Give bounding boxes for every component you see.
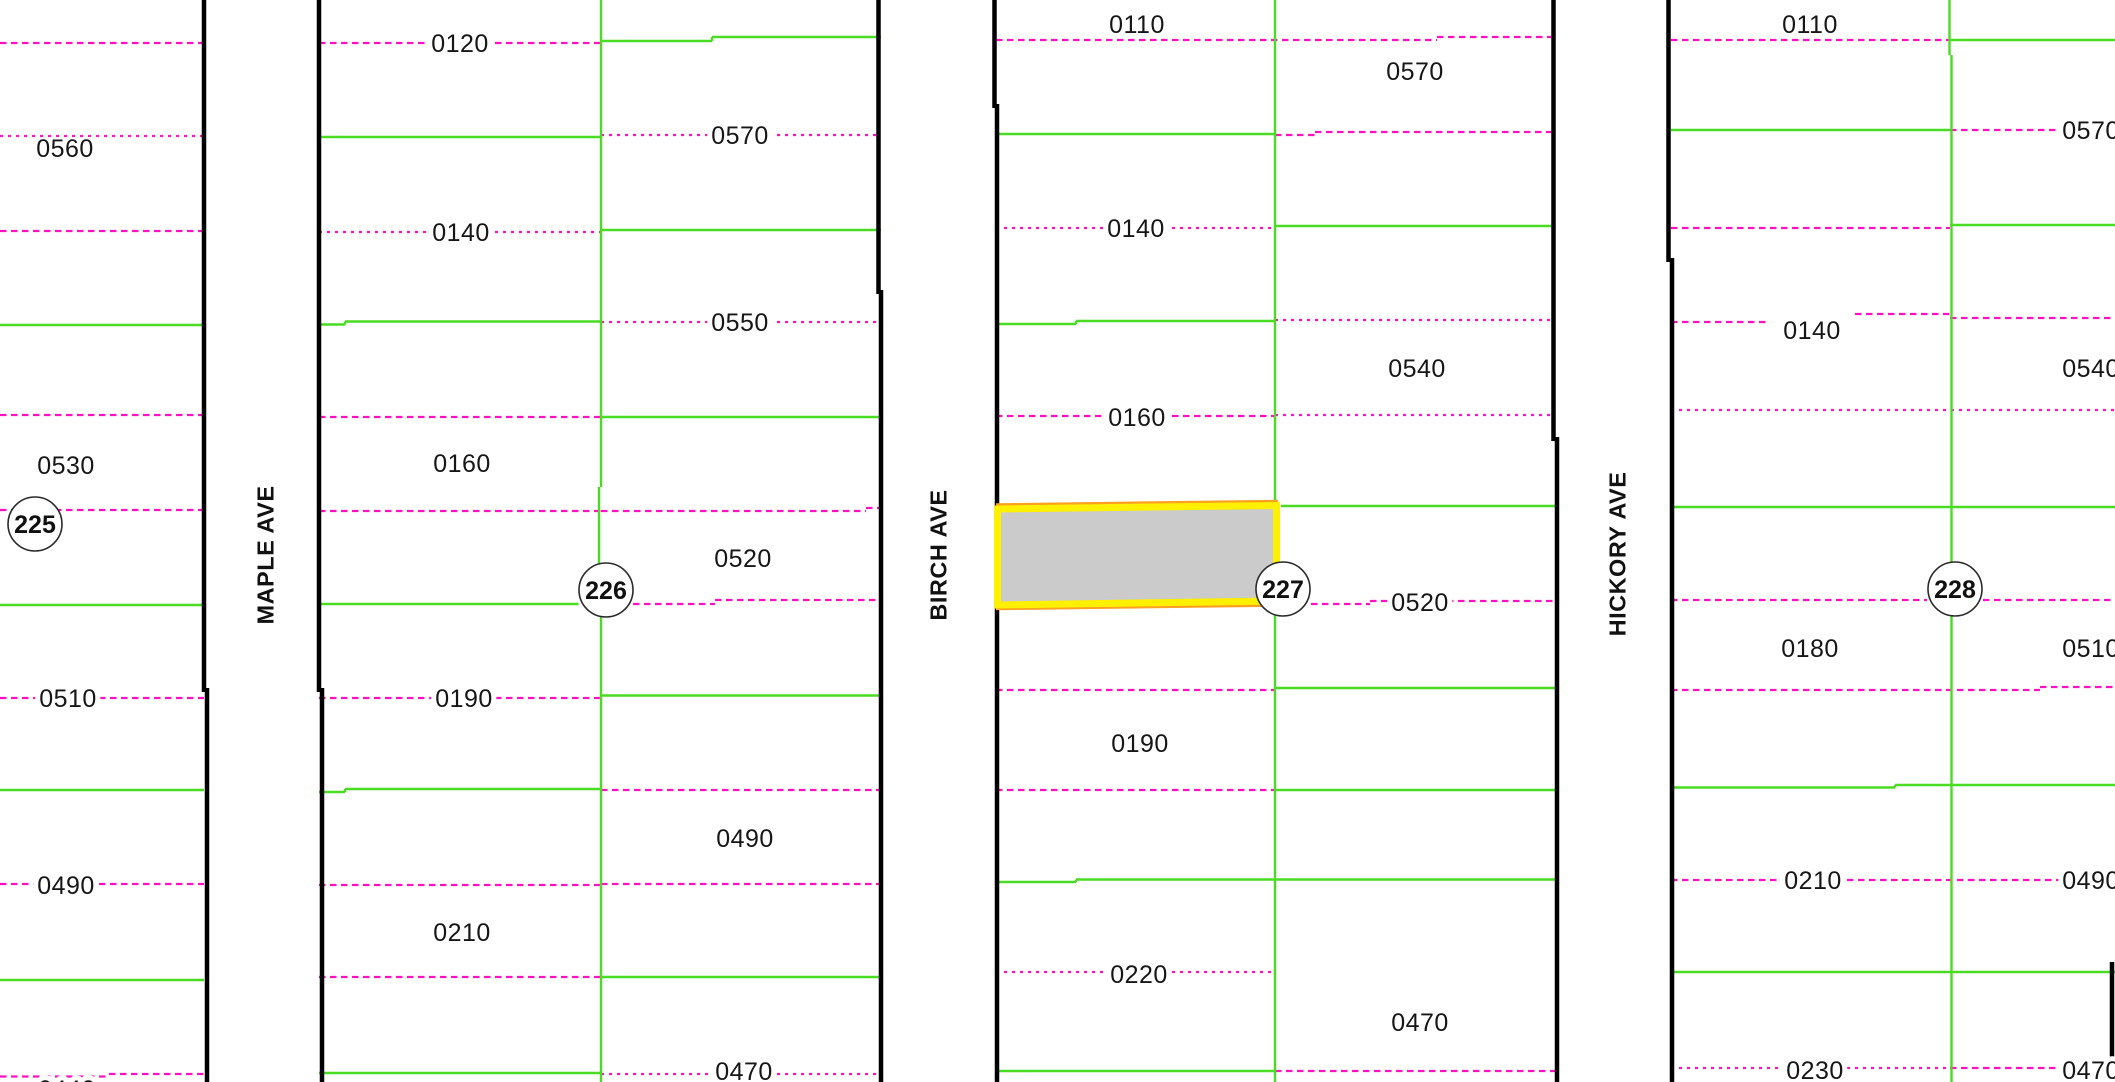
- svg-text:0560: 0560: [36, 135, 94, 163]
- svg-text:0470: 0470: [2062, 1057, 2115, 1082]
- svg-text:0510: 0510: [2062, 635, 2115, 663]
- svg-text:0470: 0470: [1391, 1009, 1449, 1037]
- svg-text:0550: 0550: [711, 309, 769, 337]
- svg-text:0540: 0540: [2062, 355, 2115, 383]
- svg-text:225: 225: [14, 511, 56, 539]
- svg-text:0520: 0520: [714, 545, 772, 573]
- svg-text:228: 228: [1934, 576, 1976, 604]
- svg-text:0110: 0110: [1782, 11, 1838, 39]
- svg-text:HICKORY AVE: HICKORY AVE: [1605, 472, 1631, 637]
- svg-text:BIRCH AVE: BIRCH AVE: [926, 489, 952, 620]
- svg-text:0190: 0190: [1111, 730, 1169, 758]
- svg-text:0140: 0140: [432, 219, 490, 247]
- svg-text:0180: 0180: [1781, 635, 1839, 663]
- svg-text:0140: 0140: [1107, 215, 1165, 243]
- svg-text:0220: 0220: [1110, 961, 1168, 989]
- svg-text:0510: 0510: [39, 685, 97, 713]
- svg-text:0520: 0520: [1391, 589, 1449, 617]
- svg-text:MAPLE AVE: MAPLE AVE: [253, 486, 279, 625]
- svg-text:0160: 0160: [433, 450, 491, 478]
- svg-text:0540: 0540: [1388, 355, 1446, 383]
- svg-text:0490: 0490: [2062, 867, 2115, 895]
- svg-text:0570: 0570: [2062, 117, 2115, 145]
- svg-text:226: 226: [585, 577, 627, 605]
- svg-text:227: 227: [1262, 576, 1304, 604]
- svg-text:0230: 0230: [1786, 1057, 1844, 1082]
- svg-text:0110: 0110: [1109, 11, 1165, 39]
- svg-text:0570: 0570: [1386, 58, 1444, 86]
- svg-text:0190: 0190: [435, 685, 493, 713]
- svg-text:0490: 0490: [716, 825, 774, 853]
- svg-text:0530: 0530: [37, 452, 95, 480]
- svg-text:0470: 0470: [715, 1058, 773, 1082]
- svg-text:0160: 0160: [1108, 404, 1166, 432]
- svg-text:0490: 0490: [37, 872, 95, 900]
- svg-text:0210: 0210: [1784, 867, 1842, 895]
- svg-text:0210: 0210: [433, 919, 491, 947]
- svg-text:0570: 0570: [711, 122, 769, 150]
- svg-text:0140: 0140: [1783, 317, 1841, 345]
- svg-text:0440: 0440: [38, 1076, 96, 1082]
- svg-text:0120: 0120: [431, 30, 489, 58]
